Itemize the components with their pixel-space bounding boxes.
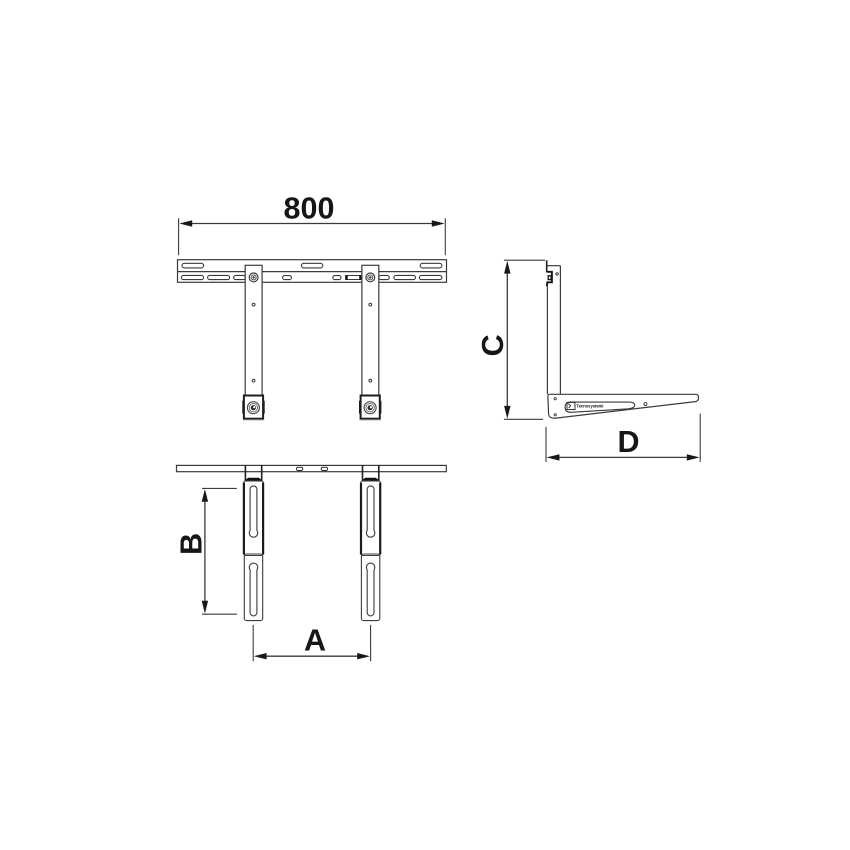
svg-text:800: 800 bbox=[284, 192, 335, 226]
svg-text:B: B bbox=[175, 533, 209, 555]
svg-text:Tecnosystemi: Tecnosystemi bbox=[576, 403, 603, 408]
svg-text:C: C bbox=[476, 334, 510, 356]
svg-text:A: A bbox=[304, 624, 326, 658]
svg-text:D: D bbox=[617, 425, 639, 459]
